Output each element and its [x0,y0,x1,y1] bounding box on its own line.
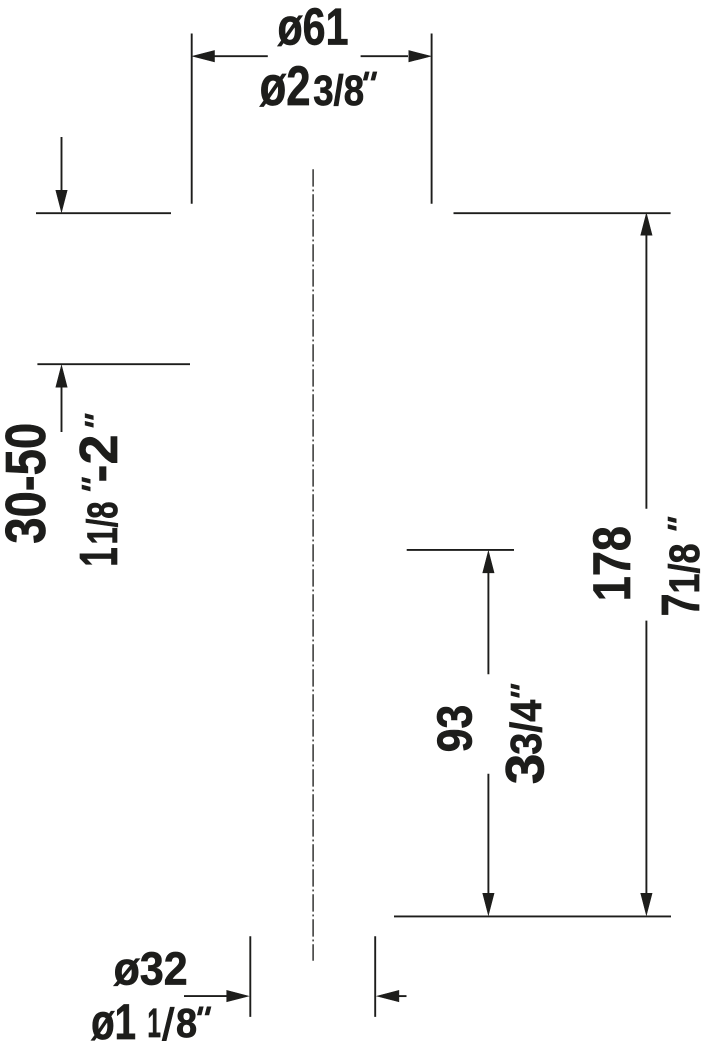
svg-text:1: 1 [147,1000,161,1046]
svg-text:1/8: 1/8 [661,544,709,594]
svg-text:ø61: ø61 [278,0,349,55]
svg-text:ø2: ø2 [260,54,311,117]
svg-text:ø1: ø1 [91,994,136,1049]
svg-text:3/8: 3/8 [313,67,364,115]
svg-text:ø32: ø32 [114,942,188,994]
svg-text:178: 178 [583,526,642,601]
svg-text:7: 7 [651,594,711,617]
svg-text:1/8: 1/8 [79,502,127,545]
svg-text:30-50: 30-50 [0,423,57,544]
svg-text:-2: -2 [69,435,129,483]
svg-text:1: 1 [69,547,129,567]
svg-text:3/4: 3/4 [503,700,551,755]
svg-text:8: 8 [176,1000,197,1046]
svg-text:93: 93 [428,705,483,753]
svg-text:3: 3 [496,754,556,785]
